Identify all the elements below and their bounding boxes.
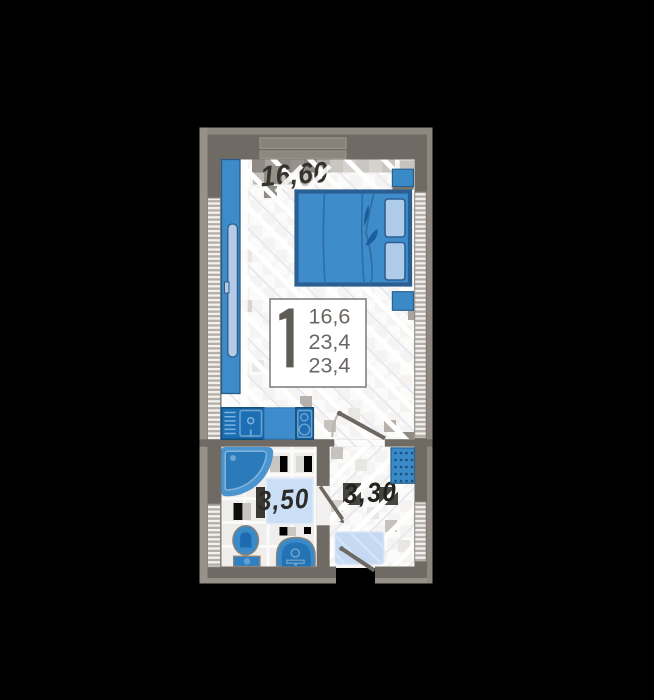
svg-text:23,4: 23,4 (309, 353, 351, 377)
svg-text:3,50: 3,50 (257, 482, 310, 516)
svg-text:3,30: 3,30 (343, 475, 398, 510)
svg-text:16,6: 16,6 (309, 305, 351, 329)
svg-text:23,4: 23,4 (309, 330, 351, 354)
